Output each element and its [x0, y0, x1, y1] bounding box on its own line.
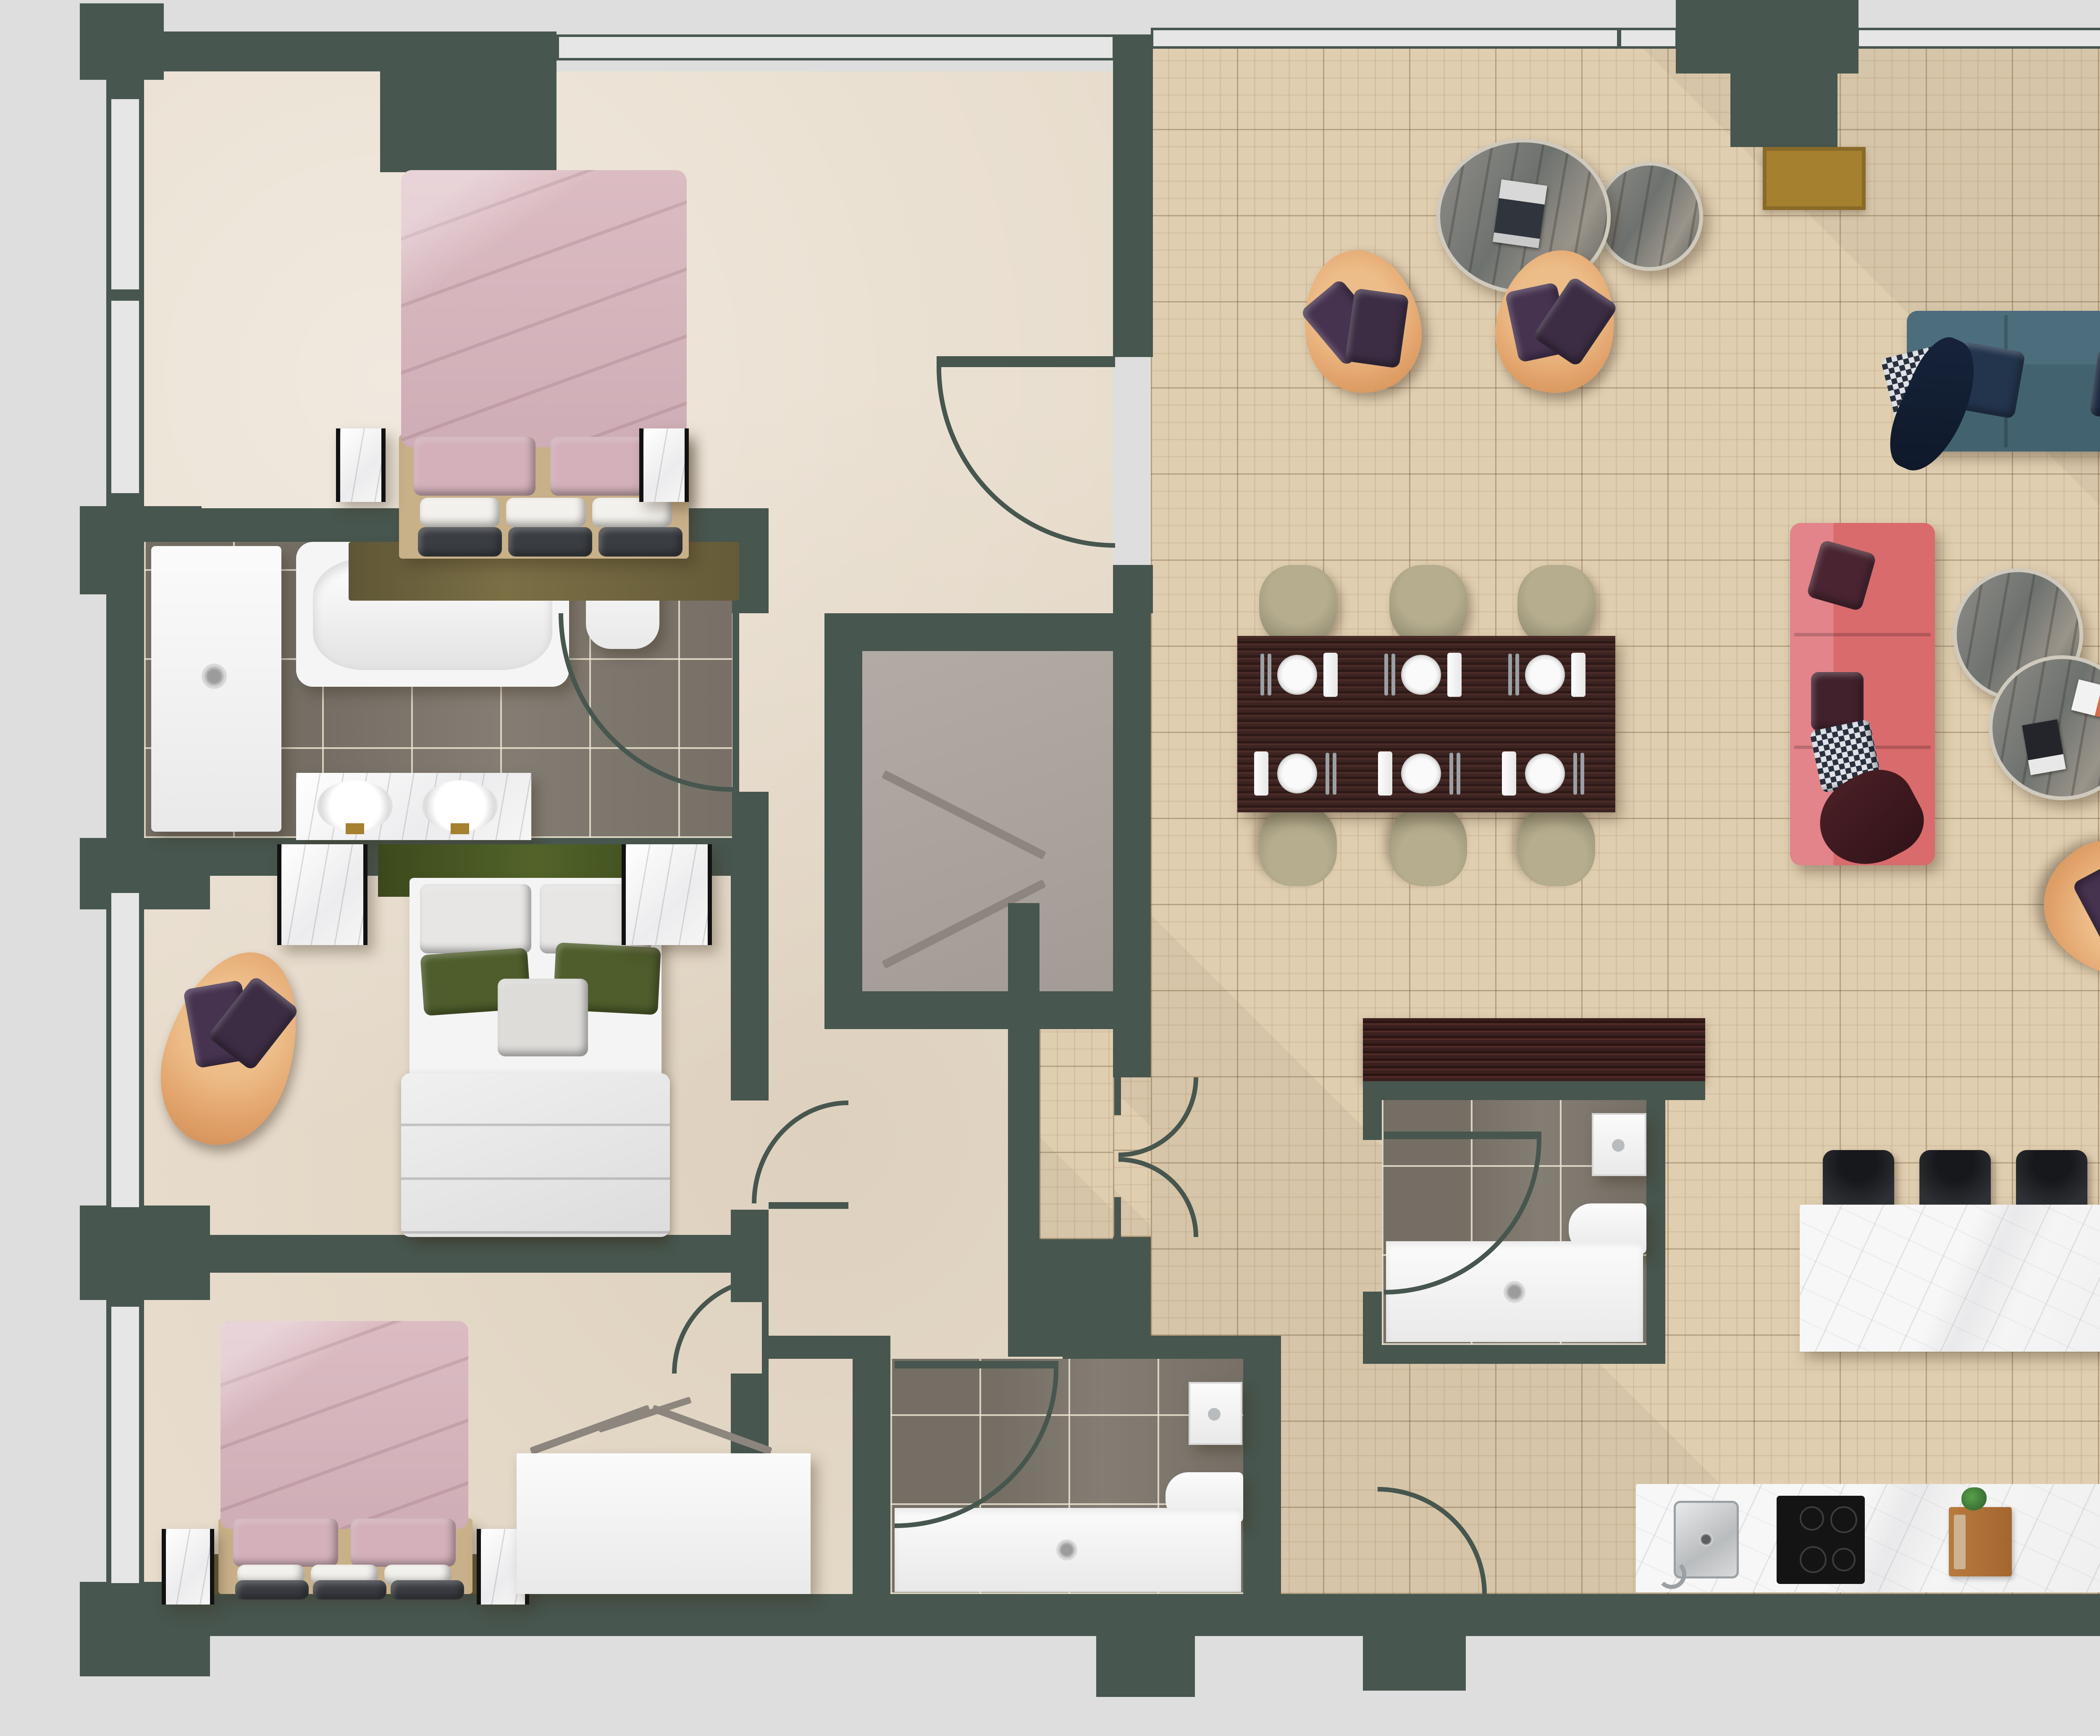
window-bedroom2: [109, 890, 142, 1210]
bed3-pillow-left: [233, 1518, 338, 1567]
bed1-pillow-white-3: [592, 498, 672, 527]
dining-chair-1[interactable]: [1259, 565, 1337, 647]
vanity-double[interactable]: [296, 773, 531, 840]
floor-plan-canvas: [0, 0, 2100, 1736]
washbasin-center[interactable]: [1592, 1113, 1646, 1176]
wall-entry-pillar: [1676, 0, 1858, 74]
sofa-red[interactable]: [1790, 523, 1935, 865]
wall-bedroom2-right-a: [731, 838, 769, 1100]
napkin-4: [1254, 751, 1268, 796]
bed1-pillow-white-1: [420, 498, 500, 527]
plate-2: [1401, 655, 1441, 695]
cutlery-9: [1449, 753, 1453, 795]
nightstand-bed1-left[interactable]: [336, 428, 386, 502]
wall-showerL-right: [1243, 1359, 1281, 1594]
cutlery-10: [1457, 753, 1460, 795]
bed2-pillow-small: [498, 979, 588, 1056]
plate-1: [1277, 655, 1317, 695]
bed1-duvet-pink[interactable]: [401, 170, 687, 447]
vanity-gold-accent-left: [346, 823, 364, 834]
bed3-cushion-dark-3: [391, 1580, 464, 1599]
cutlery-7: [1326, 753, 1329, 795]
plate-6: [1525, 754, 1565, 793]
knife-icon: [1954, 1515, 1966, 1569]
console-dark-brown[interactable]: [1363, 1018, 1705, 1081]
wall-exterior-top-a: [164, 32, 382, 71]
window-mullion-a: [1617, 28, 1621, 49]
cutlery-4: [1391, 654, 1395, 696]
bed2-duvet[interactable]: [401, 1073, 670, 1237]
cutting-board[interactable]: [1949, 1507, 2012, 1576]
burner-3: [1800, 1546, 1827, 1573]
window-bedroom3: [109, 1304, 142, 1586]
cutlery-6: [1515, 654, 1519, 696]
napkin-6: [1502, 751, 1516, 796]
nightstand-bed3-left[interactable]: [162, 1529, 214, 1605]
burner-4: [1832, 1548, 1856, 1571]
wall-showerL-top-b: [1063, 1336, 1281, 1359]
plate-5: [1401, 754, 1441, 793]
bed1-cushion-dark-2: [508, 527, 592, 557]
cutlery-2: [1268, 654, 1271, 696]
wall-entry-stub-north: [1113, 903, 1151, 1077]
wall-hall-living-mid: [1113, 565, 1153, 613]
door-leaf-showerL[interactable]: [895, 1361, 1058, 1368]
faucet-icon: [1657, 1560, 1686, 1589]
sink-drain-icon: [1699, 1532, 1713, 1547]
window-bedroom1-a: [109, 97, 142, 292]
nightstand-bed2-right[interactable]: [622, 844, 712, 945]
plate-4: [1277, 754, 1317, 793]
floor-walk-in-closet: [862, 651, 1113, 991]
shower-tray-left[interactable]: [895, 1508, 1241, 1592]
window-band-top-hall: [556, 34, 1115, 60]
dining-chair-5[interactable]: [1389, 804, 1467, 886]
coffee-table-small-top[interactable]: [1596, 162, 1703, 271]
door-leaf-bathroom-main[interactable]: [732, 613, 739, 792]
wall-entry-stem: [1730, 74, 1837, 147]
shower-drain-left-icon: [1056, 1539, 1077, 1560]
door-leaf-bedroom1[interactable]: [937, 356, 1115, 367]
cutlery-8: [1333, 753, 1336, 795]
wall-pier-top-b: [380, 32, 556, 172]
wall-showerL-top-a: [769, 1336, 890, 1359]
wall-closet-right: [1113, 613, 1151, 903]
bed3-pillow-right: [351, 1518, 456, 1567]
washbasin-left[interactable]: [1189, 1382, 1242, 1445]
bar-stool-1[interactable]: [1823, 1150, 1894, 1213]
bed3-cushion-dark-2: [313, 1580, 386, 1599]
dining-chair-2[interactable]: [1389, 565, 1467, 647]
wall-closet-bottom: [824, 991, 1151, 1029]
bed2-pillow-white-left: [420, 884, 531, 953]
burner-1: [1800, 1506, 1824, 1531]
bed3-cushion-dark-1: [235, 1580, 309, 1599]
nightstand-bed2-left[interactable]: [277, 844, 367, 945]
plate-3: [1525, 655, 1565, 695]
napkin-2: [1447, 653, 1462, 697]
bed1-cushion-dark-1: [418, 527, 502, 557]
window-band-living-right: [1856, 28, 2100, 49]
armchair-lower-pillow: [2072, 854, 2100, 947]
napkin-5: [1378, 751, 1392, 796]
washbasin-left-drain-icon: [1208, 1408, 1221, 1421]
bar-stool-2[interactable]: [1919, 1150, 1991, 1213]
magazine-icon-3: [2022, 720, 2066, 775]
wardrobe-bedroom3[interactable]: [517, 1453, 811, 1594]
dining-table[interactable]: [1237, 636, 1615, 812]
shower-drain-center-icon: [1504, 1281, 1525, 1303]
cutlery-5: [1508, 654, 1512, 696]
sofa-teal[interactable]: [1907, 311, 2100, 452]
dining-chair-3[interactable]: [1517, 565, 1595, 647]
cutlery-1: [1260, 654, 1264, 696]
bar-stool-3[interactable]: [2016, 1150, 2087, 1213]
entry-mat: [1763, 147, 1866, 210]
cooktop[interactable]: [1777, 1496, 1865, 1584]
kitchen-sink[interactable]: [1674, 1501, 1739, 1578]
sofa-teal-pillow-navy-2: [2089, 349, 2100, 425]
kitchen-island[interactable]: [1800, 1205, 2100, 1352]
wall-bedroom3-top: [106, 1235, 769, 1273]
magazine-icon: [1493, 179, 1547, 248]
cutlery-12: [1580, 753, 1584, 795]
cutlery-11: [1573, 753, 1577, 795]
vanity-gold-accent-right: [451, 823, 469, 834]
wall-block-top-left: [80, 3, 164, 80]
wall-closet-top: [862, 613, 1151, 651]
shower-drain-icon: [202, 664, 227, 689]
napkin-3: [1571, 653, 1585, 697]
kitchen-counter: [1636, 1484, 2100, 1592]
nightstand-bed1-right[interactable]: [639, 428, 689, 502]
door-leaf-showerC[interactable]: [1384, 1132, 1541, 1139]
window-bedroom1-b: [109, 298, 142, 496]
washbasin-center-drain-icon: [1612, 1139, 1625, 1152]
wall-showerC-right: [1646, 1081, 1665, 1364]
dining-chair-6[interactable]: [1517, 804, 1595, 886]
shower-tray-main[interactable]: [151, 546, 281, 832]
wall-showerC-bottom: [1363, 1345, 1665, 1364]
burner-2: [1830, 1506, 1857, 1533]
wall-closet-left: [824, 613, 862, 1029]
bed1-cushion-dark-3: [598, 527, 682, 557]
sofa-red-seam-1: [1794, 633, 1931, 636]
wall-block-bottom-b: [1363, 1594, 1466, 1691]
window-band-living-left: [1151, 28, 1678, 49]
armchair-left-pillow-2: [1345, 288, 1409, 368]
napkin-1: [1323, 653, 1338, 697]
bed1-pillow-white-2: [506, 498, 586, 527]
sofa-red-pillow-1: [1806, 539, 1877, 612]
dining-chair-4[interactable]: [1259, 804, 1337, 886]
cutlery-3: [1384, 654, 1388, 696]
bed3-duvet-pink[interactable]: [220, 1321, 468, 1529]
wall-hall-living-upper: [1113, 34, 1153, 357]
wall-block-bottom-a: [1096, 1594, 1195, 1697]
magazine-icon-2: [2071, 679, 2100, 720]
wall-showerC-left-a: [1363, 1081, 1382, 1140]
wall-showerL-left: [853, 1359, 890, 1594]
bed1-pillow-left: [414, 437, 535, 496]
wall-corridor-west: [1008, 903, 1039, 1357]
